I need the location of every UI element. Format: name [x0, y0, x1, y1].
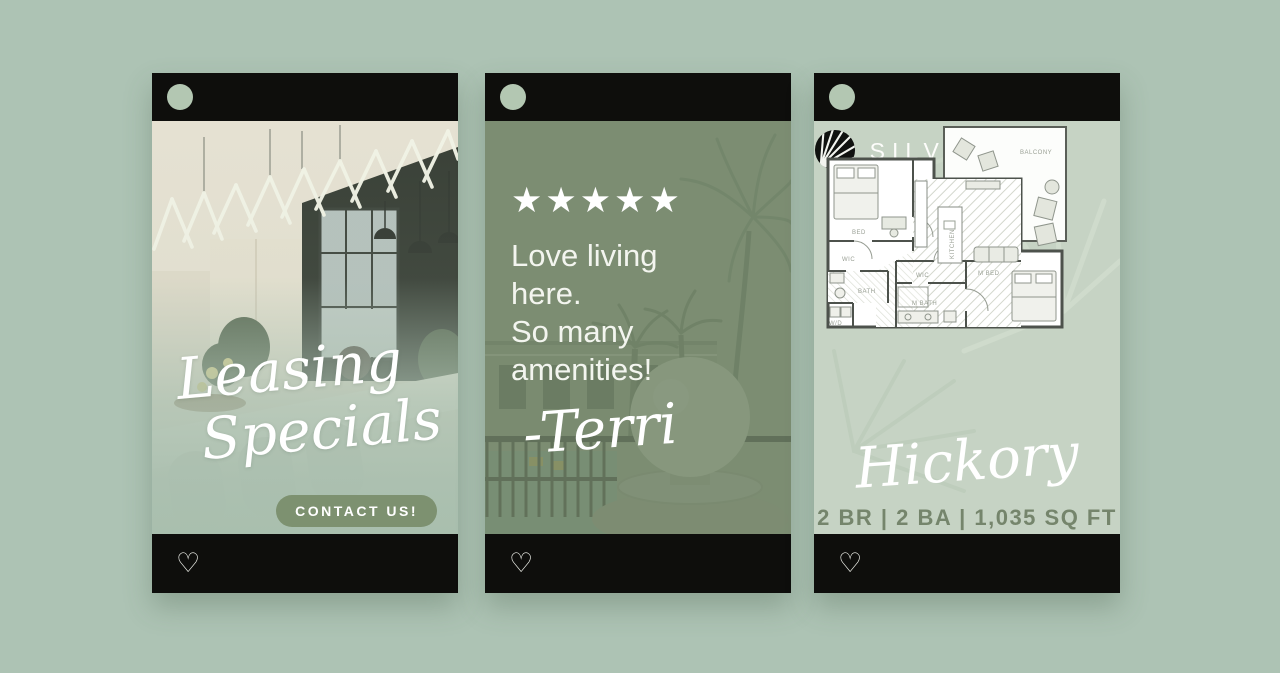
quote-line-1: Love living	[511, 237, 657, 275]
quote-line-3: So many	[511, 313, 657, 351]
post-footer-bar: ♡	[814, 534, 1120, 593]
instagram-post-leasing: Leasing Specials CONTACT US! ♡	[152, 73, 458, 593]
room-label: WIC	[916, 273, 929, 279]
instagram-post-floorplan: SILVERSAW BALCONY	[814, 73, 1120, 593]
room-label: M BATH	[912, 301, 937, 307]
floorplan-image: BALCONY	[814, 121, 1076, 333]
post-header-bar	[152, 73, 458, 121]
room-label: BED	[852, 230, 866, 236]
quote-line-4: amenities!	[511, 351, 657, 389]
contact-us-button[interactable]: CONTACT US!	[276, 495, 437, 527]
room-label: BALCONY	[1020, 150, 1052, 156]
profile-avatar[interactable]	[829, 84, 855, 110]
five-star-rating: ★★★★★	[511, 181, 683, 221]
pool-courtyard-photo: ★★★★★ Love living here. So many amenitie…	[485, 121, 791, 534]
quote-line-2: here.	[511, 275, 657, 313]
room-label: WIC	[842, 257, 855, 263]
post-header-bar	[485, 73, 791, 121]
instagram-post-testimonial: ★★★★★ Love living here. So many amenitie…	[485, 73, 791, 593]
room-label: BATH	[858, 289, 876, 295]
like-heart-icon[interactable]: ♡	[176, 550, 200, 577]
post-headline: Leasing Specials	[152, 326, 458, 476]
like-heart-icon[interactable]: ♡	[509, 550, 533, 577]
profile-avatar[interactable]	[167, 84, 193, 110]
room-label: W/D	[829, 321, 842, 327]
design-background: Leasing Specials CONTACT US! ♡	[0, 0, 1280, 673]
post-footer-bar: ♡	[485, 534, 791, 593]
profile-avatar[interactable]	[500, 84, 526, 110]
like-heart-icon[interactable]: ♡	[838, 550, 862, 577]
testimonial-quote: Love living here. So many amenities!	[511, 237, 657, 389]
room-label: M BED	[978, 271, 1000, 277]
testimonial-signature: -Terri	[521, 392, 680, 468]
floorplan-panel: SILVERSAW BALCONY	[814, 121, 1120, 534]
floorplan-specs: 2 BR | 2 BA | 1,035 SQ FT	[814, 505, 1120, 531]
post-footer-bar: ♡	[152, 534, 458, 593]
post-header-bar	[814, 73, 1120, 121]
room-label: KITCHEN	[950, 229, 956, 259]
clubhouse-interior-photo: Leasing Specials CONTACT US!	[152, 121, 458, 534]
